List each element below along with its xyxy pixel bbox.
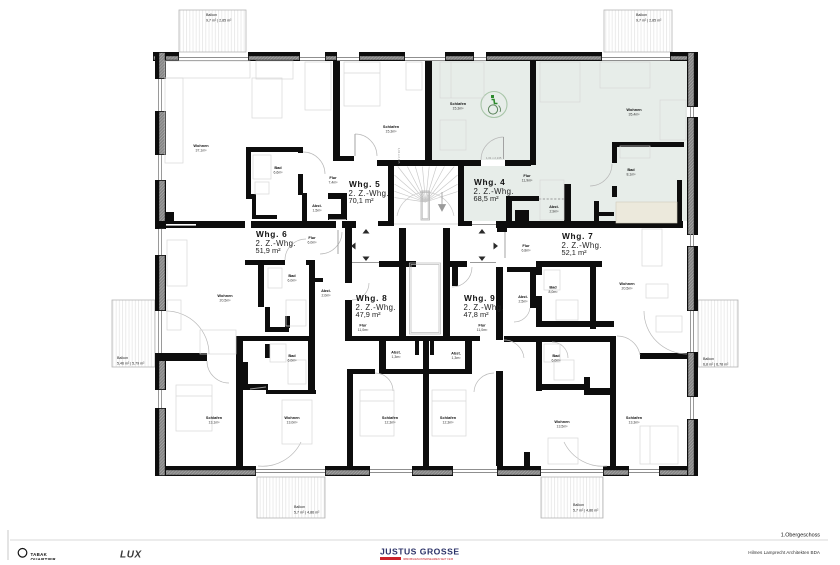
svg-text:Abst.: Abst. <box>312 203 322 208</box>
svg-text:1,5m²: 1,5m² <box>313 208 323 212</box>
svg-text:Flur: Flur <box>359 323 367 328</box>
svg-text:Balkon: Balkon <box>636 13 647 17</box>
svg-text:Abst.: Abst. <box>391 350 401 355</box>
svg-text:11,0m²: 11,0m² <box>358 328 369 332</box>
svg-text:1.Obergeschoss: 1.Obergeschoss <box>781 532 821 538</box>
svg-text:Balkon: Balkon <box>117 356 128 360</box>
svg-text:Balkon: Balkon <box>206 13 217 17</box>
svg-text:Schlafen: Schlafen <box>626 415 643 420</box>
svg-text:Bad: Bad <box>627 167 635 172</box>
svg-text:Wohnen: Wohnen <box>217 293 233 298</box>
svg-text:6,0m²: 6,0m² <box>288 358 298 362</box>
svg-text:Whg. 8: Whg. 8 <box>356 293 387 303</box>
svg-text:6,0m²: 6,0m² <box>308 240 318 244</box>
svg-text:47,9 m²: 47,9 m² <box>356 310 382 319</box>
svg-text:9,7 m² | 2,85 m²: 9,7 m² | 2,85 m² <box>636 19 662 23</box>
svg-text:1,3m²: 1,3m² <box>392 355 402 359</box>
svg-text:Wohnen: Wohnen <box>626 107 642 112</box>
svg-text:5,7 m² | 4,86 m²: 5,7 m² | 4,86 m² <box>573 509 599 513</box>
svg-text:13,3m²: 13,3m² <box>629 420 641 424</box>
svg-text:6,8 m² | 6,78 m²: 6,8 m² | 6,78 m² <box>703 363 729 367</box>
svg-text:Flur: Flur <box>522 243 530 248</box>
svg-text:12,3m²: 12,3m² <box>443 420 455 424</box>
svg-text:Flur: Flur <box>478 323 486 328</box>
svg-text:6,6m²: 6,6m² <box>274 170 284 174</box>
svg-text:Schlafen: Schlafen <box>440 415 457 420</box>
svg-text:Balkon: Balkon <box>294 505 305 509</box>
svg-text:6,0m²: 6,0m² <box>288 278 298 282</box>
svg-text:35,4m²: 35,4m² <box>629 112 641 116</box>
svg-text:11,9m²: 11,9m² <box>522 178 533 182</box>
svg-text:1,01 x 2,135: 1,01 x 2,135 <box>486 156 502 160</box>
svg-text:15,3m²: 15,3m² <box>453 106 465 110</box>
svg-text:2,0m²: 2,0m² <box>322 293 332 297</box>
svg-text:15,3m²: 15,3m² <box>386 129 398 133</box>
svg-text:6,8m²: 6,8m² <box>522 248 532 252</box>
svg-text:Wohnen: Wohnen <box>554 419 570 424</box>
svg-text:Balkon: Balkon <box>703 357 714 361</box>
svg-text:Abst.: Abst. <box>518 294 528 299</box>
svg-text:Bad: Bad <box>288 353 296 358</box>
svg-text:1,3m²: 1,3m² <box>452 356 462 360</box>
svg-text:20,5m²: 20,5m² <box>220 298 232 302</box>
svg-text:Bad: Bad <box>549 285 557 290</box>
svg-text:Whg. 5: Whg. 5 <box>349 179 380 189</box>
svg-text:Wohnen: Wohnen <box>193 143 209 148</box>
svg-text:1,01 x 2,135: 1,01 x 2,135 <box>397 148 401 164</box>
svg-text:2,9m²: 2,9m² <box>550 209 560 213</box>
svg-text:8,0m²: 8,0m² <box>549 290 559 294</box>
svg-text:Flur: Flur <box>329 175 337 180</box>
svg-text:Flur: Flur <box>308 235 316 240</box>
svg-text:5,7 m² | 4,86 m²: 5,7 m² | 4,86 m² <box>294 511 320 515</box>
svg-text:Bad: Bad <box>552 353 560 358</box>
svg-text:70,1 m²: 70,1 m² <box>349 196 375 205</box>
svg-text:68,5 m²: 68,5 m² <box>474 194 500 203</box>
svg-text:13,1m²: 13,1m² <box>209 420 221 424</box>
svg-text:Schlafen: Schlafen <box>383 124 400 129</box>
svg-text:51,9 m²: 51,9 m² <box>256 246 282 255</box>
svg-text:5,46 m² | 5,79 m²: 5,46 m² | 5,79 m² <box>117 362 145 366</box>
svg-text:Bad: Bad <box>274 165 282 170</box>
svg-text:13,0m²: 13,0m² <box>287 420 299 424</box>
svg-text:8,1m²: 8,1m² <box>627 172 637 176</box>
svg-text:Abst.: Abst. <box>451 351 461 356</box>
svg-text:Whg. 6: Whg. 6 <box>256 229 287 239</box>
svg-text:LUX: LUX <box>120 550 143 561</box>
svg-text:Whg. 9: Whg. 9 <box>464 293 495 303</box>
svg-text:Schlafen: Schlafen <box>206 415 223 420</box>
svg-text:9,7 m² | 2,85 m²: 9,7 m² | 2,85 m² <box>206 19 232 23</box>
svg-text:Wohnen: Wohnen <box>619 281 635 286</box>
svg-text:47,8 m²: 47,8 m² <box>464 310 490 319</box>
svg-text:37,1m²: 37,1m² <box>196 148 208 152</box>
svg-text:Schlafen: Schlafen <box>382 415 399 420</box>
svg-text:Wohnen: Wohnen <box>284 415 300 420</box>
svg-text:Whg. 7: Whg. 7 <box>562 231 593 241</box>
svg-text:20,5m²: 20,5m² <box>622 286 634 290</box>
svg-text:Schlafen: Schlafen <box>450 101 467 106</box>
svg-text:52,1 m²: 52,1 m² <box>562 248 588 257</box>
svg-text:Balkon: Balkon <box>573 503 584 507</box>
svg-text:JUSTUS GROSSE: JUSTUS GROSSE <box>380 547 460 557</box>
svg-text:13,5m²: 13,5m² <box>557 424 569 428</box>
svg-text:6,0m²: 6,0m² <box>552 358 562 362</box>
svg-text:11,0m²: 11,0m² <box>477 328 488 332</box>
svg-text:2,5m²: 2,5m² <box>519 299 529 303</box>
svg-text:Flur: Flur <box>523 173 531 178</box>
svg-text:12,3m²: 12,3m² <box>385 420 397 424</box>
svg-text:Hilmes Lamprecht Architekten B: Hilmes Lamprecht Architekten BDA <box>748 550 821 555</box>
svg-text:Whg. 4: Whg. 4 <box>474 177 505 187</box>
svg-text:Bad: Bad <box>288 273 296 278</box>
svg-text:Abst.: Abst. <box>321 288 331 293</box>
svg-text:7,4m²: 7,4m² <box>329 180 339 184</box>
svg-text:Abst.: Abst. <box>549 204 559 209</box>
